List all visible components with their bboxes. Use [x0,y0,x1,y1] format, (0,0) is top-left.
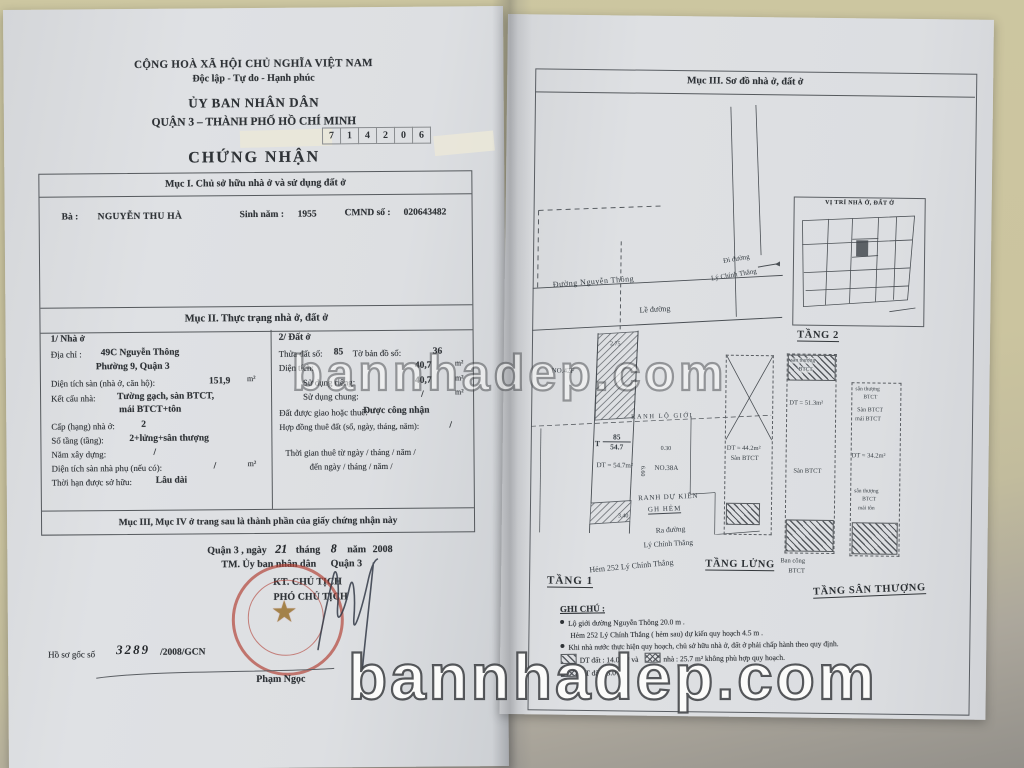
parcel-dt-label: DT = 54.7m² [596,461,633,469]
dossier-suffix: /2008/GCN [160,647,205,657]
national-header: CỘNG HOÀ XÃ HỘI CHỦ NGHĨA VIỆT NAM Độc l… [68,57,439,130]
address-value-line1: 49C Nguyễn Thông [101,348,180,359]
road-boundary-label: RANH LỘ GIỚI [631,412,693,420]
owner-label: Bà : [62,212,79,222]
roof-balcony-hatch [851,522,897,555]
roof-terrace2-text2: BTCT [862,496,876,502]
roof-mai-ton-label: mái tôn [858,505,875,511]
structure-value-line1: Tường gạch, sàn BTCT, [117,391,214,402]
floor2-terrace-text2: BTCT [799,367,813,373]
location-map-drawing [793,211,922,325]
birth-year-value: 1955 [298,210,317,220]
dossier-label: Hồ sơ gốc số [48,649,95,659]
motto: Độc lập - Tự do - Hạnh phúc [69,72,439,86]
id-number-value: 020643482 [404,207,447,217]
roof-dt-label: DT = 34.2m² [852,452,886,459]
certificate-title: CHỨNG NHẬN [4,147,504,169]
land-section-title: 2/ Đất ở [279,333,311,343]
date-place: Quận 3 , ngày [207,545,267,556]
floor2-terrace-text1: sân thượng [791,357,815,363]
grade-label: Cấp (hạng) nhà ở: [51,421,115,431]
serial-digit: 2 [377,127,395,144]
floor1-label: TẦNG 1 [547,575,593,589]
lease-to-row: đến ngày / tháng / năm / [310,461,393,472]
floor2-floor-label: Sàn BTCT [793,468,821,475]
sidewalk-label: Lề đường [639,304,670,315]
roof-floor-label: Sàn BTCT [857,407,883,413]
star-icon: ★ [271,595,298,630]
parcel-area-value: 54.7 [603,442,631,451]
granted-label: Đất được giao hoặc thuê: [279,407,368,418]
dimension-label: 0.30 [661,446,672,453]
roof-terrace-text1: sân thượng [855,386,879,392]
serial-digit: 0 [395,127,413,144]
floor-area-unit: m² [247,374,256,383]
balcony-label-line2: BTCT [788,567,805,574]
dimension-label: 3.40 [618,513,629,520]
date-day-handwritten: 21 [275,542,287,556]
mezzanine-void-cross [726,356,773,441]
dossier-number-handwritten: 3289 [116,642,150,658]
floor-area-label: Diện tích sàn (nhà ở, căn hộ): [51,378,155,389]
signer-name: Phạm Ngọc [256,674,305,685]
lease-from-row: Thời gian thuê từ ngày / tháng / năm / [285,447,415,458]
granted-value: Được công nhận [363,406,429,417]
floor2-location-label: TẦNG 2 [797,330,839,343]
watermark-center: bannhadep.com [292,344,727,402]
birth-year-label: Sinh năm : [240,210,284,220]
tenure-label: Thời hạn được sở hữu: [52,477,132,488]
parcel-prefix-label: T [595,439,600,448]
dimension-label: 6.60 [638,466,645,477]
location-map: VỊ TRÍ NHÀ Ở, ĐẤT Ở [792,197,926,328]
committee-title: ỦY BAN NHÂN DÂN [69,94,439,113]
serial-digit: 1 [341,127,359,144]
parcel-number: 85 [603,432,631,442]
aux-area-label: Diện tích sàn nhà phụ (nếu có): [52,463,162,474]
document-photo: CỘNG HOÀ XÃ HỘI CHỦ NGHĨA VIỆT NAM Độc l… [0,0,1024,768]
mezzanine-label: TẦNG LỬNG [705,558,775,571]
out-street-label1: Ra đường [655,524,685,535]
owner-name: NGUYỄN THU HÀ [98,212,183,223]
serial-digit: 6 [413,127,431,144]
location-map-title: VỊ TRÍ NHÀ Ở, ĐẤT Ở [795,200,925,208]
lease-contract-label: Hợp đồng thuê đất (số, ngày, tháng, năm)… [279,422,419,432]
floor2-balcony-hatch [785,519,833,552]
built-year-value: / [153,448,156,458]
column-divider [271,330,273,509]
watermark-bottom: bannhadep.com [348,640,878,714]
aux-area-unit: m² [248,459,257,468]
aux-area-value: / [214,461,217,471]
built-year-label: Năm xây dựng: [51,449,106,459]
floor2-dt-label: DT = 51.3m² [789,399,823,406]
floor-area-value: 151,9 [209,376,230,386]
serial-digit: 7 [322,127,341,144]
roof-mai-label: mái BTCT [855,416,881,422]
structure-label: Kết cấu nhà: [51,393,96,403]
section2-heading: Mục II. Thực trạng nhà ở, đất ở [40,304,472,333]
bullet-icon [560,620,564,624]
storeys-label: Số tầng (tầng): [51,435,103,445]
mezzanine-floor-label: Sàn BTCT [731,455,759,462]
structure-value-line2: mái BTCT+tôn [119,405,181,415]
mezzanine-balcony-hatch [726,503,760,525]
mezzanine-dt-label: DT = 44.2m² [727,445,761,452]
address-value-line2: Phường 9, Quận 3 [96,362,170,373]
roof-terrace-text2: BTCT [863,394,877,400]
address-label: Địa chỉ : [51,349,82,359]
serial-number-boxes: 714206 [322,127,431,146]
neighbor-right-label: NO.38A [654,464,678,472]
house-section-title: 1/ Nhà ở [51,334,85,344]
lease-contract-value: / [449,420,452,430]
grade-value: 2 [141,420,146,430]
section1-heading: Mục I. Chủ sở hữu nhà ở và sử dụng đất ở [39,171,471,197]
planned-boundary-label2: GH HẺM [648,504,682,514]
id-number-label: CMND số : [345,208,391,218]
serial-digit: 4 [359,127,377,144]
country-title: CỘNG HOÀ XÃ HỘI CHỦ NGHĨA VIỆT NAM [68,57,438,72]
tenure-value: Lâu dài [156,476,187,486]
balcony-label-line1: Ban công [780,557,805,564]
roof-terrace2-text1: sân thượng [854,488,878,494]
parcel-fraction: 85 54.7 [603,432,631,451]
correction-tape [240,129,332,148]
storeys-value: 2+lửng+sân thượng [129,433,209,444]
section3-note: Mục III, Mục IV ở trang sau là thành phầ… [42,507,474,535]
